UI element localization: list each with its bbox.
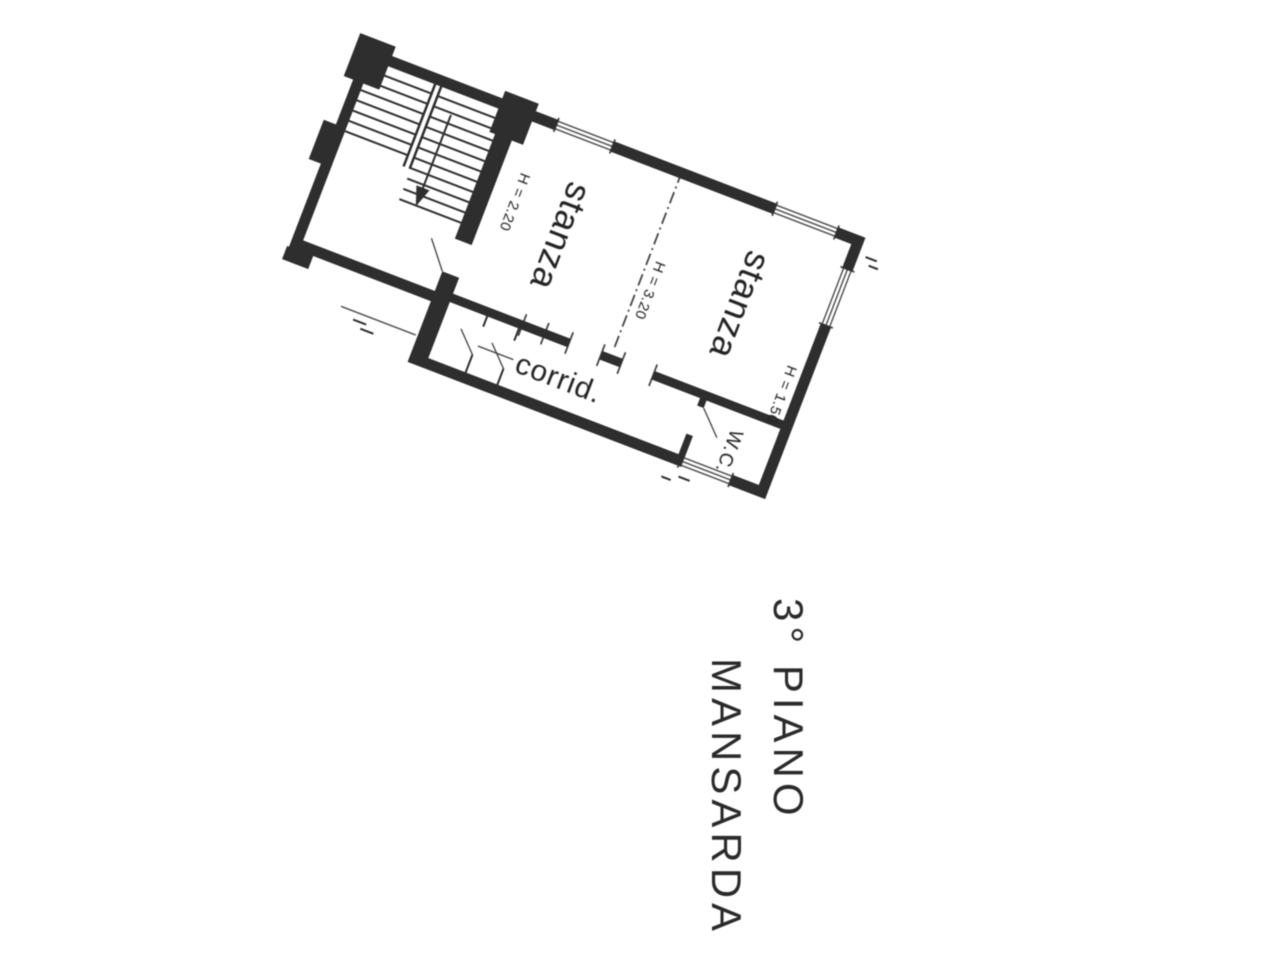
caption-mansarda: MANSARDA bbox=[703, 658, 750, 936]
stairwell-walls bbox=[254, 32, 540, 373]
floor-plan-rotated-group: stanza stanza corrid. W.C. H = 2.20 H = … bbox=[248, 32, 891, 522]
room-label-stanza-2: stanza bbox=[701, 246, 779, 365]
height-annotation-left: H = 2.20 bbox=[496, 171, 534, 234]
landing-door-leaf bbox=[422, 238, 452, 271]
outer-walls bbox=[408, 100, 866, 499]
corridor-label-leader bbox=[478, 346, 513, 360]
caption-floor-number: 3° PIANO bbox=[765, 598, 812, 821]
floor-plan-drawing: stanza stanza corrid. W.C. H = 2.20 H = … bbox=[0, 0, 1280, 960]
ridge-height-line bbox=[613, 172, 682, 351]
room-label-stanza-1: stanza bbox=[522, 177, 600, 296]
caption-block: 3° PIANO MANSARDA bbox=[703, 598, 812, 936]
scanned-page: stanza stanza corrid. W.C. H = 2.20 H = … bbox=[0, 0, 1280, 960]
